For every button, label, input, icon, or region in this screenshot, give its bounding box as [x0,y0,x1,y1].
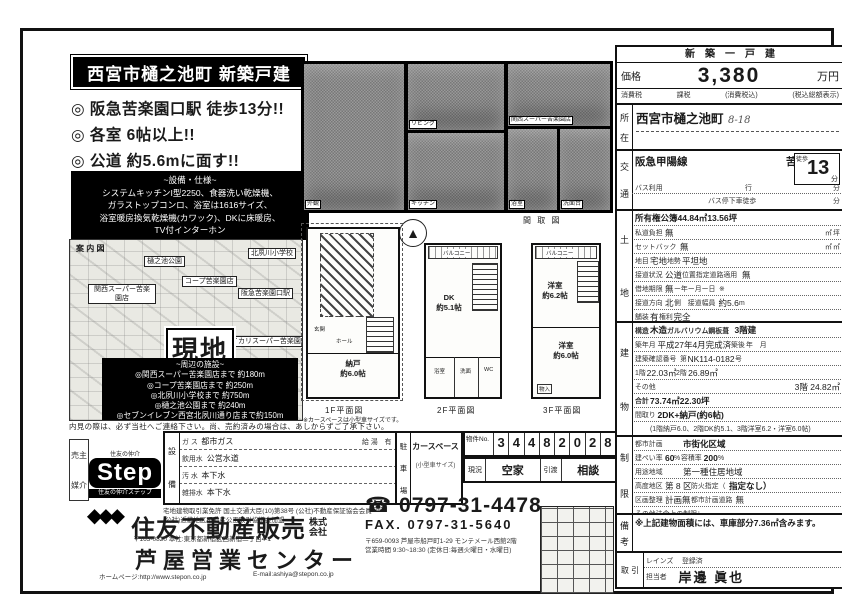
status-label: 現況 [465,459,486,481]
spec-line: システムキッチンI型2250、食器洗い乾燥機、 [71,187,309,200]
section-label: 考 [620,535,629,548]
agent-section: 取 引 レインズ 登録済 担当者 岸邊 眞也 [615,551,842,589]
walk-minutes: 13 [807,157,829,180]
parking-note: (小型車サイズ) [410,460,461,469]
law-row-label: 建ぺい率 [635,452,663,462]
facility-heading: ~周辺の施設~ [102,360,298,370]
land-unit: ㎡ [825,241,832,251]
section-label: 在 [620,131,629,144]
company-suffix-line: 株式 [309,517,327,527]
diamond-glyphs: ◆◆◆ [81,509,127,523]
land-unit: m [739,298,745,306]
law-cell: 市街化区域 [683,438,726,450]
property-number-digit: 0 [569,433,584,455]
equip-value: 本下水 [207,487,231,498]
building-cell: ガルバリウム鋼板葺 [667,325,729,335]
photo-caption: 浴室 [509,200,525,210]
price-label: 価格 [621,68,641,83]
land-cell-label: ー年ー月ー日 [674,283,715,293]
fax-number: FAX. 0797-31-5640 [365,517,512,532]
building-cell: 3階建 [735,324,757,336]
section-label: 地 [620,286,629,299]
handover-label: 引渡 [540,459,562,481]
building-row-label: 構造 [635,325,649,335]
floorplan-3f: バルコニー 洋室 約6.2帖 洋室 約6.0帖 物入 [531,243,601,399]
wall-divider [478,357,479,397]
law-row-label: 用途地域 [635,466,663,476]
facility-line: ◎関西スーパー苦楽園店まで 約180m [102,370,298,380]
carspace-area [320,233,374,317]
land-cell: 約5.6 [719,297,739,309]
agent-name: 岸邊 眞也 [679,568,745,584]
property-number-digit: 4 [524,433,539,455]
photo-washstand: 洗面台 [560,129,610,210]
floorplan-1f: 玄関 ホール 納戸 約6.0帖 [306,227,400,399]
bus-row-suffix: 行 [745,182,752,192]
map-label-kansai-super: 関西スーパー苦楽園店 [88,284,156,304]
section-label: 備 [620,519,629,532]
caption-3f: 3F平面図 [543,405,581,416]
law-cell: 計画無 [665,494,691,506]
room-label-balcony: バルコニー [546,249,573,257]
location-handwritten: 8-18 [728,115,750,126]
land-cell: 公道 [665,269,682,281]
land-cell: 平坦地 [682,255,708,267]
photo-caption: キッチン [409,200,437,210]
access-section: 交通 阪急甲陽線 苦楽園口 駅 徒歩 13 分 バス利用 行 分 [615,149,842,211]
property-number-strip: 物件No. 3 4 4 8 2 0 2 8 [463,431,617,457]
land-cell: ※ [719,284,725,292]
phone-number-text: 0797-31-4478 [399,494,542,517]
room-size: 約6.0帖 [340,369,365,378]
map-label-ikari: イカリスーパー苦楽園店 [228,336,303,347]
floorplan-2f: バルコニー DK 約5.1帖 浴室 洗面 WC [424,243,502,399]
facility-line: ◎セブンイレブン西宮北夙川通り店まで約150m [102,411,298,421]
room-name: 納戸 [346,359,361,368]
bus-row-label: バス利用 [635,182,663,192]
building-area-total-tsubo: 22.30坪 [680,395,710,407]
room-size: 約5.1帖 [436,303,461,312]
map-label-station: 阪急苦楽園口駅 [238,288,293,299]
land-unit: ㎡ [833,241,840,251]
property-title-text: 西宮市樋之池町 新築戸建 [87,60,291,85]
balcony-2f: バルコニー [428,246,498,259]
equipment-table: 設備 ガ ス 都市ガス 給 湯 有 飲用水 公営水道 汚 水 本下水 雑排水 [163,431,399,505]
building-cell: 第 [680,353,687,363]
room-label-wash: 洗面 [460,367,471,375]
hq-address: 〒163-0820 本社:東京都新宿区西新宿二丁目4-1 [133,533,271,543]
photo-grid: 外観 リビング キッチン 関西スーパー苦楽園店 浴室 洗面台 [301,61,613,213]
facility-line: ◎北夙川小学校まで 約750m [102,391,298,401]
section-label: 限 [620,487,629,500]
law-row-label: 都市計画 [635,438,663,448]
phone-number: ☎ 0797-31-4478 [365,493,542,518]
property-number-label: 物件No. [465,433,494,455]
handover-value: 相談 [562,462,616,478]
section-label: 車 [400,463,408,474]
facility-distance-box: ~周辺の施設~ ◎関西スーパー苦楽園店まで 約180m ◎コープ苦楽園店まで 約… [102,358,298,420]
photo-caption: リビング [409,120,437,130]
section-label: 土 [620,233,629,246]
land-unit: 坪 [833,227,840,237]
tax-value: 課税 [677,90,691,100]
phone-icon: ☎ [365,494,392,517]
remarks-section: 備考 ※上記建物面積には、車庫部分7.36㎡含みます。 [615,513,842,553]
dealer-type-box: 売主 媒介 [69,439,89,501]
land-row-label: 私道負担 [635,227,663,237]
law-cell: 第一種住居地域 [683,466,743,478]
photo-bathroom: 浴室 [508,129,557,210]
dealer-type: 売主 [71,450,87,461]
tax-note2: (税込総額表示) [792,90,839,100]
spec-line: TV付インターホン [71,224,309,237]
land-cell: 北 [665,297,674,309]
law-row-label: 都市計画道路 [691,494,732,504]
dealer-type: 媒介 [71,480,87,491]
section-label: 所 [620,111,629,124]
spec-line: 浴室暖房換気乾燥機(カワック)、DKに床暖房、 [71,212,309,225]
equip-row-label: 飲用水 [182,453,203,463]
reins-status: 登録済 [682,555,703,565]
map-label-coop: コープ苦楽園店 [182,276,237,287]
section-label: 備 [168,479,176,490]
section-label: 制 [620,451,629,464]
photo-kitchen: キッチン [408,133,504,210]
company-suffix-line: 会社 [309,527,327,537]
photo-caption: 洗面台 [561,200,583,210]
building-row-label: 間取り [635,409,656,419]
status-value: 空家 [486,462,540,478]
land-area-sqm: 44.84㎡ [678,212,708,224]
room-label-nando: 納戸 約6.0帖 [308,359,398,378]
sales-point-1: ◎ 阪急苦楽園口駅 徒歩13分!! [71,97,284,119]
land-row-label: 接道方向 [635,297,663,307]
office-hours: 営業時間 9:30~18:30 (定休日:毎週火曜日・水曜日) [365,544,511,554]
wall-divider [308,353,398,354]
law-row-label: 容積率 [681,452,702,462]
facility-line: ◎樋之池公園まで 約240m [102,401,298,411]
facility-line: ◎コープ苦楽園店まで 約250m [102,381,298,391]
equip-extra: 給 湯 有 [362,436,392,446]
building-area: 3階 24.82㎡ [795,381,840,393]
property-number-digit: 4 [508,433,523,455]
section-label: 建 [620,346,629,359]
photo-neighborhood: 関西スーパー苦楽園店 [508,64,610,126]
office-access-map [540,506,614,594]
building-area: 26.89㎡ [688,367,718,379]
layout-value: 2DK+納戸(約6帖) [658,409,724,421]
building-cell: 平成27年4月完成済 [658,339,732,351]
price-section: 新 築 一 戸 建 価格 3,380 万円 消費税 課税 (消費税込) (税込総… [615,45,842,105]
building-cell: 号 [735,353,742,363]
section-label: 設 [168,446,176,457]
equip-row-label: 雑排水 [182,487,203,497]
spec-box: ~設備・仕様~ システムキッチンI型2250、食器洗い乾燥機、 ガラストップコン… [71,171,309,240]
room-name: 洋室 [548,281,563,290]
legal-section: 制限 都市計画 市街化区域 建ぺい率 60 % 容積率 200 % 用途地域 第… [615,435,842,515]
land-cell-label: 地勢 [667,255,681,265]
law-cell: 無 [736,494,745,506]
law-cell: 200 [704,453,718,463]
photo-exterior: 外観 [304,64,404,210]
sales-point-2: ◎ 各室 6帖以上!! [71,123,195,145]
land-section: 土地 所有権 公簿 44.84㎡ 13.56坪 私道負担 無 ㎡ 坪 セットバッ… [615,209,842,323]
stairs-2f [472,263,498,311]
property-number-digit: 3 [494,433,508,455]
ruled-line [636,131,839,132]
land-cell: 無 [680,241,689,253]
room-label-closet: 物入 [537,384,552,394]
property-number-digit: 2 [585,433,600,455]
room-label-dk: DK 約5.1帖 [426,293,472,312]
room-name: 洋室 [559,341,574,350]
property-number-digit: 8 [600,433,615,455]
section-label: 通 [620,187,629,200]
building-permit-number: NK114-0182 [688,354,735,364]
bus-walk-unit: 分 [833,195,840,205]
flyer-page: 西宮市樋之池町 新築戸建 ◎ 阪急苦楽園口駅 徒歩13分!! ◎ 各室 6帖以上… [0,0,842,595]
building-row-label: 築年月 [635,339,656,349]
building-section: 建物 構造 木造 ガルバリウム鋼板葺 3階建 築年月 平成27年4月完成済 築後… [615,321,842,437]
property-type-header: 新 築 一 戸 建 [617,47,842,63]
map-label-park: 樋之池公園 [144,256,185,267]
step-logo: 住友の仲介 Step 住友の仲介ステップ [89,449,161,498]
section-label: 物 [620,400,629,413]
land-cell-label: 位置指定道路適用 [682,269,737,279]
email-address: E-mail:ashiya@stepon.co.jp [253,571,334,578]
room-size: 約6.0帖 [553,351,578,360]
property-title: 西宮市樋之池町 新築戸建 [73,57,305,87]
law-cell: 第 8 区 [665,480,691,492]
reins-label: レインズ [646,555,673,565]
step-logo-text: Step [89,458,161,488]
price-value: 3,380 [641,64,817,88]
building-row-label: 建築確認番号 [635,353,676,363]
land-cell-label: 側 接道幅員 [674,297,715,307]
building-cell: 年 月 [746,339,767,349]
map-title: 案 内 図 [74,244,106,253]
wall-divider [454,357,455,397]
wall-divider [533,327,599,328]
law-row-label: 区画整理 [635,494,663,504]
room-name: DK [444,293,455,302]
flyer-sheet: 西宮市樋之池町 新築戸建 ◎ 阪急苦楽園口駅 徒歩13分!! ◎ 各室 6帖以上… [20,28,834,594]
company-suffix: 株式 会社 [309,517,327,537]
agent-name-label: 担当者 [646,571,667,581]
floorplan-heading: 間 取 図 [523,215,561,226]
bus-row-unit: 分 [833,182,840,192]
equip-row-label: 汚 水 [182,470,198,480]
stairs-3f [577,261,599,303]
room-label-yoshitsu-2: 洋室 約6.0帖 [533,341,599,360]
building-row-label: 2階 [676,367,687,377]
building-row-label: その他 [635,381,656,391]
rail-line: 阪急甲陽線 [635,154,688,169]
balcony-3f: バルコニー [535,246,597,259]
spec-heading: ~設備・仕様~ [71,174,309,187]
law-row-label: 高度地区 [635,480,663,490]
equip-value: 都市ガス [201,436,233,447]
building-area: 22.03㎡ [647,367,677,379]
land-cell: 無 [665,227,674,239]
building-cell-label: 築後 [731,339,745,349]
wall-divider [426,357,500,358]
map-label-school: 北夙川小学校 [248,248,296,259]
parking-value: カースペース [410,441,461,452]
land-row-label: 借地期限 [635,283,663,293]
room-size: 約6.2帖 [542,291,567,300]
land-cell: 無 [665,283,674,295]
equip-value: 公営水道 [207,453,239,464]
photo-living: リビング [408,64,504,130]
law-cell: 指定なし） [729,480,772,492]
room-label-hall: ホール [336,337,353,345]
section-label: 交 [620,160,629,173]
law-unit: % [674,453,680,461]
law-unit: % [718,453,724,461]
section-label: 取 引 [621,565,639,576]
walk-minutes-box: 徒歩 13 分 [794,153,840,185]
step-logo-band: 住友の仲介ステップ [89,489,161,498]
building-cell: 木造 [650,324,667,336]
room-label-wc: WC [484,367,493,373]
section-label: 駐 [400,441,408,452]
bus-walk-label: バス停下車徒歩 [708,195,756,205]
land-cell: 無 [742,269,751,281]
tax-note: (消費税込) [725,90,758,100]
room-label-yoshitsu-1: 洋室 約6.2帖 [533,281,577,300]
law-row-label: 防火指定（ [691,480,726,490]
property-number-digit: 2 [554,433,569,455]
land-cell: 宅地 [650,255,667,267]
area-map: 案 内 図 樋之池公園 北夙川小学校 コープ苦楽園店 関西スーパー苦楽園店 阪急… [69,239,303,421]
sales-point-3: ◎ 公道 約5.6mに面す!! [71,149,239,171]
building-row-label: 1階 [635,367,646,377]
location-value: 西宮市樋之池町 [636,112,724,126]
remarks-text: ※上記建物面積には、車庫部分7.36㎡含みます。 [632,515,842,531]
equip-value: 本下水 [201,470,225,481]
land-row-label: セットバック [635,241,676,251]
land-area-tsubo: 13.56坪 [707,212,737,224]
carspace-note: ※カースペースは小型車サイズです。 [303,415,402,424]
equip-row-label: ガ ス [182,436,198,446]
layout-detail: (1階納戸6.0、2階DK約5.1、3階洋室6.2・洋室6.0帖) [650,423,811,433]
status-strip: 現況 空家 引渡 相談 [463,457,617,483]
photo-caption: 外観 [305,200,321,210]
land-row-label: 地目 [635,255,649,265]
building-area-total: 73.74㎡ [650,395,680,407]
spec-line: ガラストップコンロ、浴室は1616サイズ、 [71,199,309,212]
property-number-digit: 8 [539,433,554,455]
homepage-url: ホームページ:http://www.stepon.co.jp [99,571,206,581]
building-row-label: 合計 [635,395,649,405]
land-row-label: 所有権 [635,212,661,224]
compass-icon: ▲ [399,219,427,247]
land-cell: 公簿 [661,212,678,224]
room-label-genkan: 玄関 [314,325,325,333]
sumitomo-diamond-logo: ◆◆◆ [81,509,127,523]
land-row-label: 接道状況 [635,269,663,279]
caption-2f: 2F平面図 [437,405,475,416]
stairs-1f [366,317,394,353]
room-label-bath: 浴室 [434,367,445,375]
step-logo-tagline: 住友の仲介 [89,449,161,458]
room-label-balcony: バルコニー [443,249,470,257]
tax-label: 消費税 [621,90,642,100]
price-unit: 万円 [817,68,839,84]
location-section: 所在 西宮市樋之池町 8-18 [615,103,842,151]
photo-caption: 関西スーパー苦楽園店 [509,116,573,126]
land-unit: ㎡ [825,227,832,237]
